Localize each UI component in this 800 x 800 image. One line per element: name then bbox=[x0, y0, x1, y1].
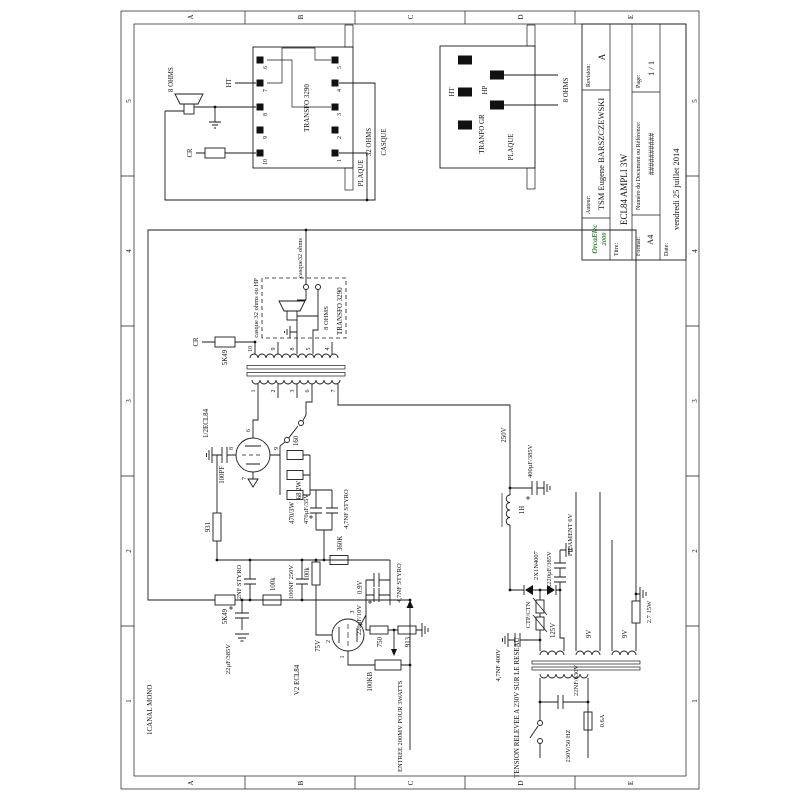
22nf-label: 22NF/630V bbox=[573, 665, 580, 696]
470uf-label: 470µF/35V bbox=[303, 494, 310, 524]
zone-number: 1 bbox=[125, 699, 133, 703]
schematic-canvas: 1 2 3 4 5 1 2 3 4 5 A B C D E A B C D E … bbox=[120, 10, 700, 790]
750-label: 750 bbox=[377, 636, 384, 647]
pin-label: 9 bbox=[263, 136, 269, 139]
zone-letter: D bbox=[517, 14, 525, 19]
zone-letter: D bbox=[517, 780, 525, 785]
page-label: Page: bbox=[636, 74, 642, 88]
v1-name: 1/2ECL84 bbox=[202, 408, 210, 438]
100pf-label: 100PF bbox=[219, 466, 226, 484]
pin-label: 10 bbox=[263, 159, 269, 165]
32ohms-label: 32 OHMS bbox=[366, 128, 373, 156]
logo: 2000 bbox=[601, 232, 608, 247]
v2-name: V2 ECL84 bbox=[293, 664, 301, 695]
v2-pin1: 1 bbox=[340, 656, 346, 659]
canal-label: 1CANAL MONO bbox=[146, 685, 154, 736]
fuse-label: 0.6A bbox=[599, 714, 606, 727]
casque-label: CASQUE bbox=[381, 128, 388, 155]
100k-series-label: 100k bbox=[270, 577, 277, 591]
mid-8ohms-label: 8 OHMS bbox=[323, 306, 330, 330]
middle-transfo: 1 2 3 6 7 10 9 8 5 4 TRANSFO 3290 CR 5K4… bbox=[193, 229, 346, 398]
pin-label: 5 bbox=[337, 66, 343, 69]
revision-label: Revision: bbox=[586, 64, 592, 87]
sec-pin: 4 bbox=[325, 348, 331, 351]
2nf-label: 2NF STYRO bbox=[236, 564, 243, 599]
mains-note: TENSION RELEVEE A 230V SUR LE RESEAU bbox=[513, 637, 521, 778]
numero-value: ########## bbox=[646, 132, 656, 175]
pri-pin: 3 bbox=[290, 390, 296, 393]
100k-load-label: 100k bbox=[304, 567, 311, 581]
47nf-styro-label: 4,7NF STYRO bbox=[343, 489, 350, 529]
pin-label: 4 bbox=[337, 89, 343, 92]
125v-label: 125V bbox=[550, 623, 557, 638]
pin-label: 3 bbox=[337, 113, 343, 116]
casque32-wire-label: casque32 ohms bbox=[297, 238, 304, 278]
68-2w-label: 68 2W bbox=[296, 480, 303, 499]
gr-8ohms-label: 8 OHMS bbox=[563, 77, 570, 102]
choke-label: 1H bbox=[519, 506, 526, 514]
v1-pin9: 9 bbox=[274, 447, 280, 450]
output-transfo-block: TRANSFO 3290 10 9 8 7 6 1 2 3 4 5 HT 8 O… bbox=[165, 25, 388, 201]
zone-letter: A bbox=[187, 14, 195, 19]
format-value: A4 bbox=[645, 234, 655, 245]
casque-option-label: casque 32 ohms ou HP bbox=[253, 278, 260, 338]
entree-label: ENTREE 200MV POUR 3WATTS bbox=[397, 680, 404, 772]
ht-label: HT bbox=[226, 78, 233, 88]
gr-hp-label: HP bbox=[482, 85, 489, 94]
470-3w-label: 470/3W bbox=[289, 501, 296, 523]
diodes-label: 2X1N4007 bbox=[533, 550, 540, 580]
input-network: 5K49 22µF/385V 2NF STYRO 100NF 250V 100k… bbox=[215, 536, 414, 772]
titre-value: ECL84 AMPLI 3W bbox=[619, 153, 629, 225]
100kb-label: 100KB bbox=[367, 672, 374, 692]
75v-label: 75V bbox=[315, 640, 322, 652]
pri-pin: 7 bbox=[331, 390, 337, 393]
zone-number: 4 bbox=[125, 249, 133, 253]
auteur-value: TSM Eugene BARSZCZEWSKI bbox=[596, 98, 606, 211]
cr-label: CR bbox=[187, 148, 194, 158]
gr-plaque-label: PLAQUE bbox=[508, 134, 515, 161]
pri-pin: 2 bbox=[271, 390, 277, 393]
filament-label: FILAMENT 6V bbox=[567, 514, 574, 557]
220uf-label: 220µF/10V bbox=[356, 605, 363, 635]
ctp-ctn-label: CTP/CTN bbox=[525, 601, 532, 628]
9v-label: 9V bbox=[622, 630, 629, 638]
transfo-a-name: TRANSFO 3290 bbox=[303, 84, 311, 132]
transfo-gr-block: HT TRANFO GR HP PLAQUE 8 OHMS bbox=[440, 25, 570, 189]
pri-pin: 1 bbox=[251, 390, 257, 393]
pin-label: 8 bbox=[263, 113, 269, 116]
931-label: 931 bbox=[205, 522, 212, 532]
zone-number: 2 bbox=[125, 549, 133, 553]
v1-pin8: 8 bbox=[229, 447, 235, 450]
230v-label: 230V/50 HZ bbox=[565, 729, 572, 762]
auteur-label: Auteur: bbox=[586, 195, 592, 214]
v1-pin6: 6 bbox=[246, 429, 252, 432]
zone-number: 4 bbox=[691, 249, 699, 253]
360k-label: 360K bbox=[337, 536, 344, 551]
revision-value: A bbox=[597, 53, 607, 60]
title-block: OrcaElec 2000 Auteur: TSM Eugene BARSZCZ… bbox=[582, 24, 686, 260]
9v-label: 9V bbox=[586, 630, 593, 638]
160-label: 160 bbox=[293, 435, 300, 446]
zone-letter: E bbox=[627, 781, 635, 785]
date-value: vendredi 25 juillet 2014 bbox=[671, 148, 681, 230]
pin-label: 1 bbox=[337, 159, 343, 162]
v2-pin2: 2 bbox=[326, 640, 332, 643]
zone-letter: B bbox=[297, 780, 305, 785]
400uf-label: 400µF/385V bbox=[527, 444, 534, 478]
schematic-sheet: 1 2 3 4 5 1 2 3 4 5 A B C D E A B C D E … bbox=[120, 10, 700, 790]
page-value: 1 / 1 bbox=[646, 61, 656, 76]
22uf-label: 22µF/385V bbox=[225, 644, 232, 674]
pri-pin: 6 bbox=[305, 390, 311, 393]
zone-letter: B bbox=[297, 14, 305, 19]
v2-47nf-label: 4,7NF STYRO bbox=[396, 563, 403, 603]
250v-label: 250V bbox=[501, 427, 508, 442]
zone-letter: C bbox=[407, 14, 415, 19]
zone-number: 3 bbox=[125, 399, 133, 403]
2-7ohm-label: 2.7 15W bbox=[646, 600, 653, 623]
zone-letter: E bbox=[627, 15, 635, 19]
v1-tube: 1/2ECL84 100PF 931 8 7 6 9 470/3W 68 2W … bbox=[202, 398, 350, 561]
zone-letter: A bbox=[187, 780, 195, 785]
sec-pin: 5 bbox=[306, 348, 312, 351]
mid-transfo-name: TRANSFO 3290 bbox=[336, 287, 344, 335]
logo: OrcaElec bbox=[590, 224, 599, 254]
numero-label: Numéro du Document ou Référence: bbox=[635, 121, 642, 210]
zone-number: 5 bbox=[691, 99, 699, 103]
power-supply: TENSION RELEVEE A 230V SUR LE RESEAU 125… bbox=[338, 398, 653, 778]
5k49-input-label: 5K49 bbox=[222, 608, 229, 624]
mid-5k49-label: 5K49 bbox=[222, 349, 229, 365]
plaque-label: PLAQUE bbox=[358, 160, 365, 187]
transfo-gr-name: TRANFO GR bbox=[478, 114, 486, 154]
sec-pin: 9 bbox=[271, 348, 277, 351]
v1-pin7: 7 bbox=[242, 477, 248, 480]
913-label: 913 bbox=[405, 636, 412, 647]
09v-label: 0.9V bbox=[357, 581, 364, 594]
speaker-8ohms-label: 8 OHMS bbox=[168, 67, 175, 92]
zone-number: 3 bbox=[691, 399, 699, 403]
pin-label: 2 bbox=[337, 136, 343, 139]
pin-label: 6 bbox=[263, 66, 269, 69]
zone-number: 5 bbox=[125, 99, 133, 103]
gr-ht-label: HT bbox=[449, 87, 456, 97]
zone-number: 2 bbox=[691, 549, 699, 553]
pin-label: 7 bbox=[263, 89, 269, 92]
100nf-label: 100NF 250V bbox=[288, 565, 295, 599]
v2-tube: V2 ECL84 100k 75V 2 1 100KB 750 913 3 0.… bbox=[293, 559, 428, 696]
mid-cr-label: CR bbox=[193, 337, 200, 347]
sec-pin: 8 bbox=[290, 348, 296, 351]
page: 1 2 3 4 5 1 2 3 4 5 A B C D E A B C D E … bbox=[0, 0, 800, 800]
sec-pin: 10 bbox=[248, 346, 254, 352]
titre-label: Titre: bbox=[614, 243, 620, 256]
date-label: Date: bbox=[664, 243, 670, 256]
2x220uf-label: 2X220µF/385V bbox=[546, 551, 553, 593]
zone-number: 1 bbox=[691, 699, 699, 703]
format-label: Format: bbox=[636, 237, 642, 256]
47nf-400v-label: 4,7NF 400V bbox=[495, 649, 502, 682]
zone-letter: C bbox=[407, 780, 415, 785]
